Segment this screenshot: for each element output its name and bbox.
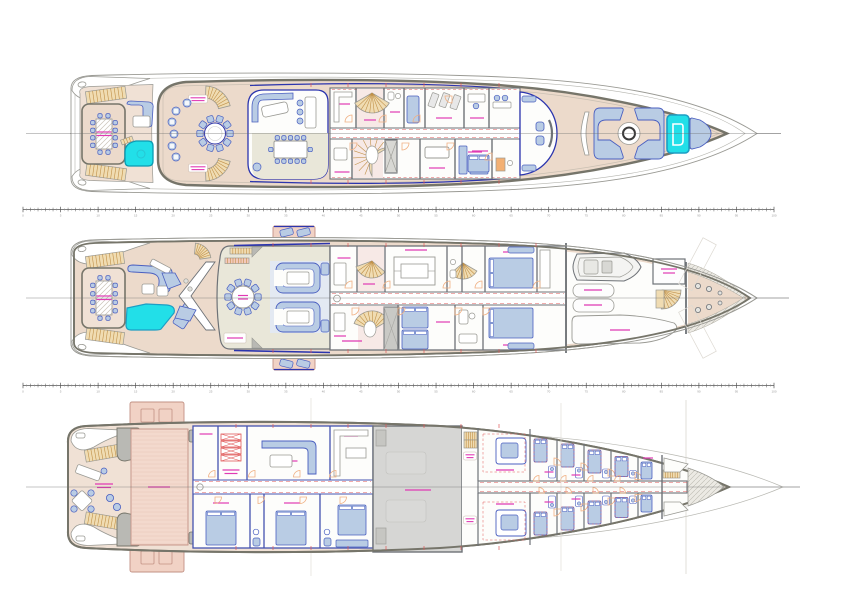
svg-text:65: 65 xyxy=(509,390,513,394)
svg-text:100: 100 xyxy=(771,214,776,218)
svg-text:50: 50 xyxy=(397,214,401,218)
svg-text:30: 30 xyxy=(247,214,251,218)
svg-text:45: 45 xyxy=(359,390,363,394)
svg-text:55: 55 xyxy=(434,214,438,218)
svg-text:65: 65 xyxy=(509,214,513,218)
svg-text:5: 5 xyxy=(60,214,62,218)
svg-text:85: 85 xyxy=(660,214,664,218)
svg-text:0: 0 xyxy=(22,390,24,394)
svg-text:20: 20 xyxy=(172,390,176,394)
svg-text:90: 90 xyxy=(697,214,701,218)
svg-text:95: 95 xyxy=(735,390,739,394)
svg-text:40: 40 xyxy=(322,214,326,218)
svg-text:90: 90 xyxy=(697,390,701,394)
svg-text:25: 25 xyxy=(209,390,213,394)
svg-text:15: 15 xyxy=(134,214,138,218)
svg-text:25: 25 xyxy=(209,214,213,218)
svg-text:15: 15 xyxy=(134,390,138,394)
svg-text:80: 80 xyxy=(622,214,626,218)
svg-text:80: 80 xyxy=(622,390,626,394)
svg-text:55: 55 xyxy=(434,390,438,394)
svg-text:70: 70 xyxy=(547,214,551,218)
svg-text:10: 10 xyxy=(96,390,100,394)
svg-text:45: 45 xyxy=(359,214,363,218)
svg-text:100: 100 xyxy=(771,390,776,394)
svg-text:95: 95 xyxy=(735,214,739,218)
svg-text:30: 30 xyxy=(247,390,251,394)
svg-text:75: 75 xyxy=(585,214,589,218)
svg-text:35: 35 xyxy=(284,214,288,218)
svg-text:40: 40 xyxy=(322,390,326,394)
svg-text:70: 70 xyxy=(547,390,551,394)
svg-text:5: 5 xyxy=(60,390,62,394)
svg-text:35: 35 xyxy=(284,390,288,394)
svg-text:50: 50 xyxy=(397,390,401,394)
svg-text:60: 60 xyxy=(472,214,476,218)
svg-text:75: 75 xyxy=(585,390,589,394)
svg-text:20: 20 xyxy=(172,214,176,218)
svg-text:85: 85 xyxy=(660,390,664,394)
svg-text:60: 60 xyxy=(472,390,476,394)
svg-text:10: 10 xyxy=(96,214,100,218)
svg-text:0: 0 xyxy=(22,214,24,218)
